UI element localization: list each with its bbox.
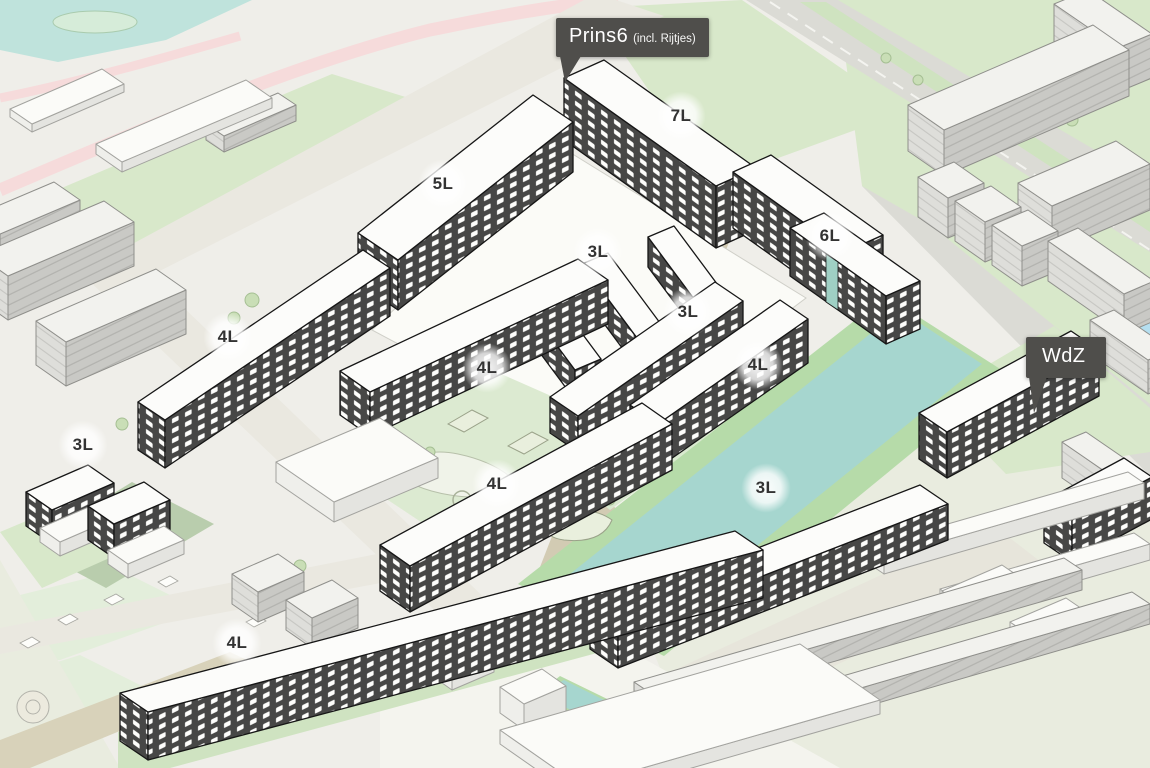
tooltip-title: WdZ xyxy=(1042,345,1085,367)
pond-island xyxy=(53,11,137,33)
tooltip-pointer xyxy=(560,56,581,82)
accents-layer xyxy=(826,254,838,310)
tooltip-subtitle: (incl. Rijtjes) xyxy=(633,33,696,45)
tooltip-pointer xyxy=(1029,377,1047,413)
marker-tooltip-prins6[interactable]: Prins6(incl. Rijtjes) xyxy=(556,18,709,57)
roundabout xyxy=(17,691,49,723)
map-viewport[interactable]: 7L 5L 3L 6L 4L 3L 4L 4L 3L 4L 3L 4L Prin… xyxy=(0,0,1150,768)
tooltip-title: Prins6 xyxy=(569,25,628,47)
map-3d-scene[interactable] xyxy=(0,0,1150,768)
glass-facade-accent xyxy=(826,254,838,310)
marker-tooltip-wdz[interactable]: WdZ xyxy=(1026,337,1106,378)
